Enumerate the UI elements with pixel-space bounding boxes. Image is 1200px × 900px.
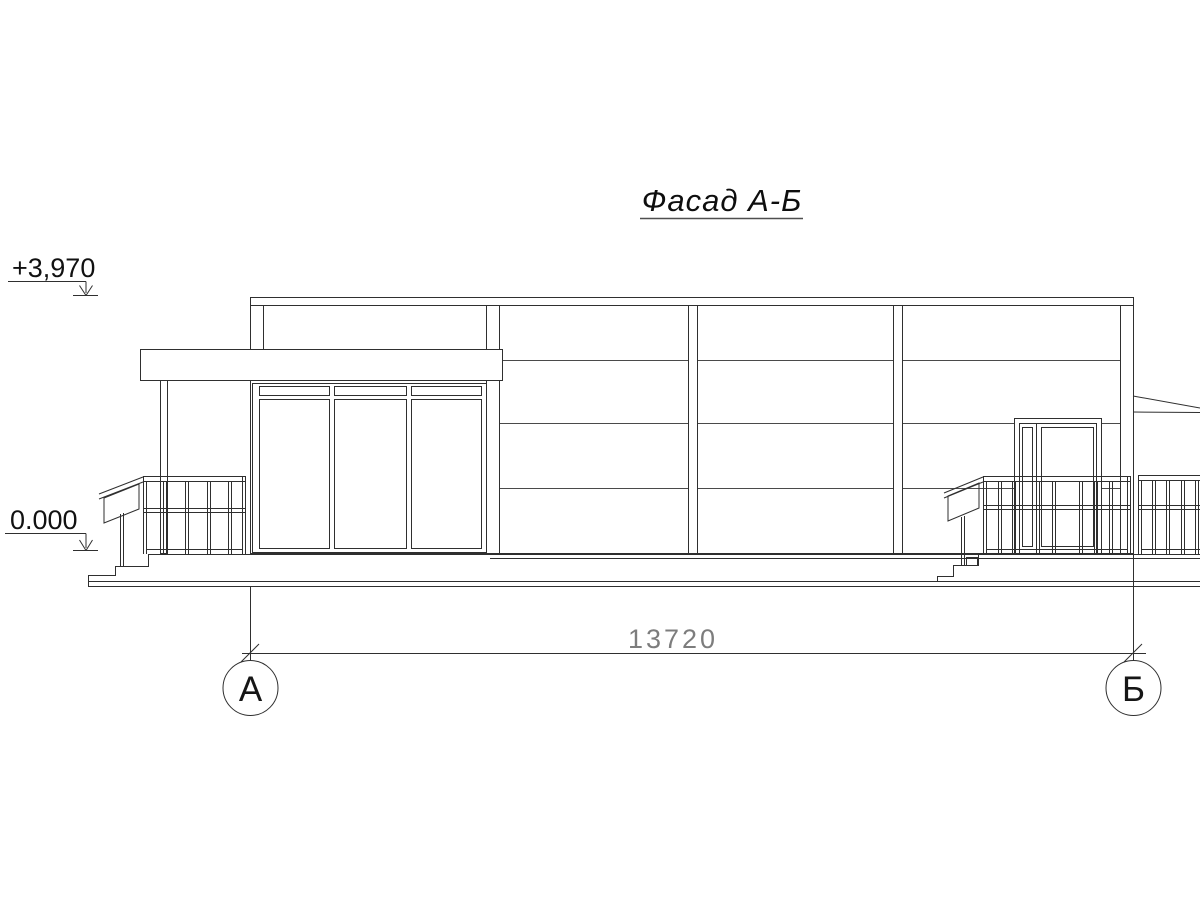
storefront-frame [253,384,487,553]
pilaster [894,306,903,554]
railing-right-outer [1138,475,1200,554]
door-frame [1015,419,1102,554]
facade-drawing: 13720 А Б +3,970 0.000 Фасад А-Б [0,0,1200,900]
pilaster [689,306,698,554]
handrail-slope-left [99,477,143,566]
axis-label-b: Б [1122,670,1145,709]
axis-label-a: А [239,670,263,709]
drawing-sheet: 13720 А Б +3,970 0.000 Фасад А-Б [0,0,1200,900]
level-label-zero: 0.000 [10,505,78,535]
base-platform [88,555,1200,587]
level-mark-zero [5,534,98,551]
dimension-label: 13720 [628,624,718,654]
level-mark-parapet [8,282,98,296]
entrance-door [1015,419,1102,554]
pilaster [487,306,500,554]
storefront-window [253,384,487,553]
side-ramp-edge [1133,396,1200,413]
level-label-parapet: +3,970 [12,253,95,283]
porch-railing-left [143,476,246,554]
canopy-slab [141,350,503,381]
drawing-title: Фасад А-Б [642,183,803,218]
